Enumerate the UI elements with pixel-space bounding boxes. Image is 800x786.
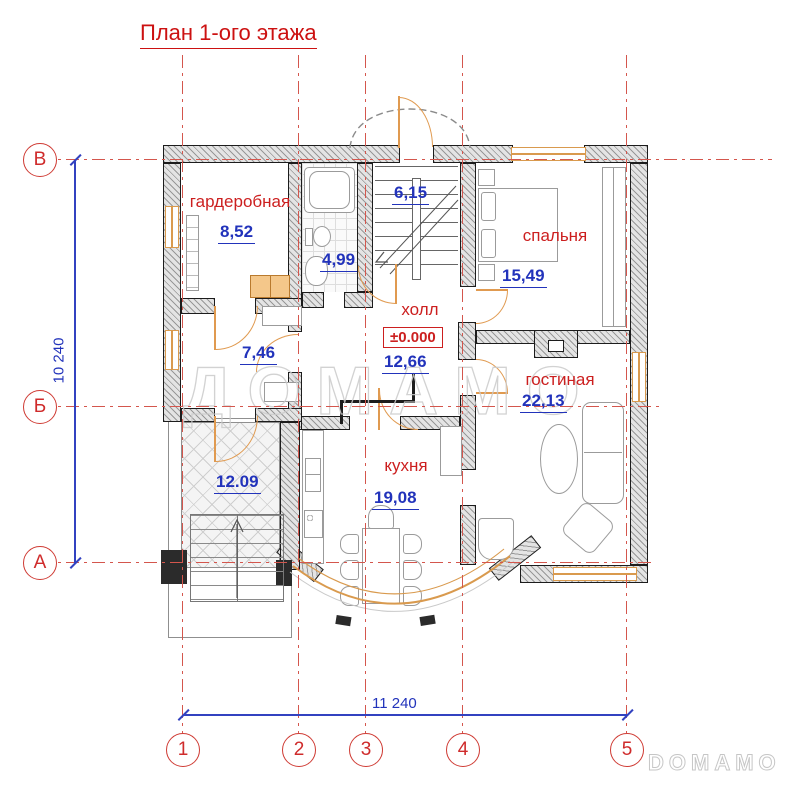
dining-table xyxy=(362,528,400,604)
kitchen-counter xyxy=(302,430,324,564)
pillow-1 xyxy=(481,192,496,221)
window-right-living xyxy=(632,352,646,402)
room-area-terrace: 12.09 xyxy=(214,472,261,494)
axis-label: 4 xyxy=(458,739,469,761)
chair-l3 xyxy=(340,586,359,606)
room-area-wardrobe: 8,52 xyxy=(218,222,255,244)
stove xyxy=(304,510,323,538)
axis-line-3 xyxy=(365,55,366,733)
axis-bubble-row-v: В xyxy=(23,143,57,177)
axis-label: 1 xyxy=(178,739,189,761)
wall-bath-bottom-b xyxy=(344,292,373,308)
terrace-steps-divider xyxy=(237,514,238,602)
vent-notch xyxy=(548,340,564,352)
window-bottom-living xyxy=(553,567,637,581)
axis-line-2 xyxy=(298,55,299,733)
kitchen-sink xyxy=(305,458,321,492)
kitchen-sink-split xyxy=(305,474,321,475)
dim-line-horizontal xyxy=(183,714,627,716)
axis-line-4 xyxy=(462,55,463,733)
room-area-kitchen: 19,08 xyxy=(372,488,419,510)
window-left-corridor xyxy=(165,330,179,370)
wall-wardrobe-bath xyxy=(288,163,302,310)
axis-label: 5 xyxy=(622,739,633,761)
dim-line-vertical xyxy=(74,160,76,563)
chair-l1 xyxy=(340,534,359,554)
bathtub-inner xyxy=(309,171,350,209)
axis-bubble-row-b: Б xyxy=(23,390,57,424)
axis-label: 2 xyxy=(294,739,305,761)
room-area-living: 22,13 xyxy=(520,391,567,413)
sofa-line xyxy=(584,452,622,453)
entrance-door-arc xyxy=(399,97,433,147)
axis-label: Б xyxy=(34,396,46,418)
wardrobe-cabinet-split xyxy=(270,275,271,298)
bedroom-door-arc xyxy=(476,290,508,324)
chair-r3 xyxy=(403,586,422,606)
room-label-living: гостиная xyxy=(510,370,610,390)
axis-bubble-col-1: 1 xyxy=(166,733,200,767)
armchair-left xyxy=(478,518,514,560)
armchair-diagonal xyxy=(560,500,616,556)
room-label-wardrobe: гардеробная xyxy=(175,192,305,212)
fridge xyxy=(440,426,462,476)
axis-label: 3 xyxy=(361,739,372,761)
axis-bubble-col-2: 2 xyxy=(282,733,316,767)
nightstand-bottom xyxy=(478,264,495,281)
axis-bubble-row-a: А xyxy=(23,546,57,580)
axis-line-1 xyxy=(182,55,183,733)
chair-r1 xyxy=(403,534,422,554)
room-area-hall: 12,66 xyxy=(382,352,429,374)
room-area-bedroom: 15,49 xyxy=(500,266,547,288)
axis-line-B1 xyxy=(40,159,772,160)
wall-bath-bottom-a xyxy=(302,292,324,308)
window-left-wardrobe xyxy=(165,206,179,248)
page-title: План 1-ого этажа xyxy=(140,20,317,49)
axis-label: А xyxy=(34,552,47,574)
axis-line-A xyxy=(40,562,656,563)
closet-line xyxy=(613,167,614,327)
living-oval-table xyxy=(540,424,578,494)
axis-bubble-col-3: 3 xyxy=(349,733,383,767)
room-area-bathroom: 4,99 xyxy=(320,250,357,272)
axis-label: В xyxy=(34,149,47,171)
room-label-hall: холл xyxy=(390,300,450,320)
wall-wardrobe-bottom-a xyxy=(181,298,215,314)
room-area-stairs: 6,15 xyxy=(392,183,429,205)
hall-elevation-mark: ±0.000 xyxy=(383,327,443,348)
floor-plan-page: { "title": "План 1-ого этажа", "axes": {… xyxy=(0,0,800,786)
axis-bubble-col-4: 4 xyxy=(446,733,480,767)
toilet-tank xyxy=(305,228,313,246)
bedroom-closet xyxy=(602,167,626,327)
watermark-corner: DOMAMO xyxy=(648,750,781,776)
dim-vertical-value: 10 240 xyxy=(50,338,67,384)
toilet-bowl xyxy=(313,226,331,247)
dim-horizontal-value: 11 240 xyxy=(372,695,417,712)
room-label-bedroom: спальня xyxy=(505,226,605,246)
axis-line-B2 xyxy=(40,406,660,407)
pillow-2 xyxy=(481,229,496,258)
nightstand-top xyxy=(478,169,495,186)
room-label-kitchen: кухня xyxy=(375,456,437,476)
axis-bubble-col-5: 5 xyxy=(610,733,644,767)
wardrobe-shelves xyxy=(186,215,199,291)
corridor-cabinet xyxy=(262,306,302,326)
room-area-corridor: 7,46 xyxy=(240,343,277,365)
axis-line-5 xyxy=(626,55,627,733)
